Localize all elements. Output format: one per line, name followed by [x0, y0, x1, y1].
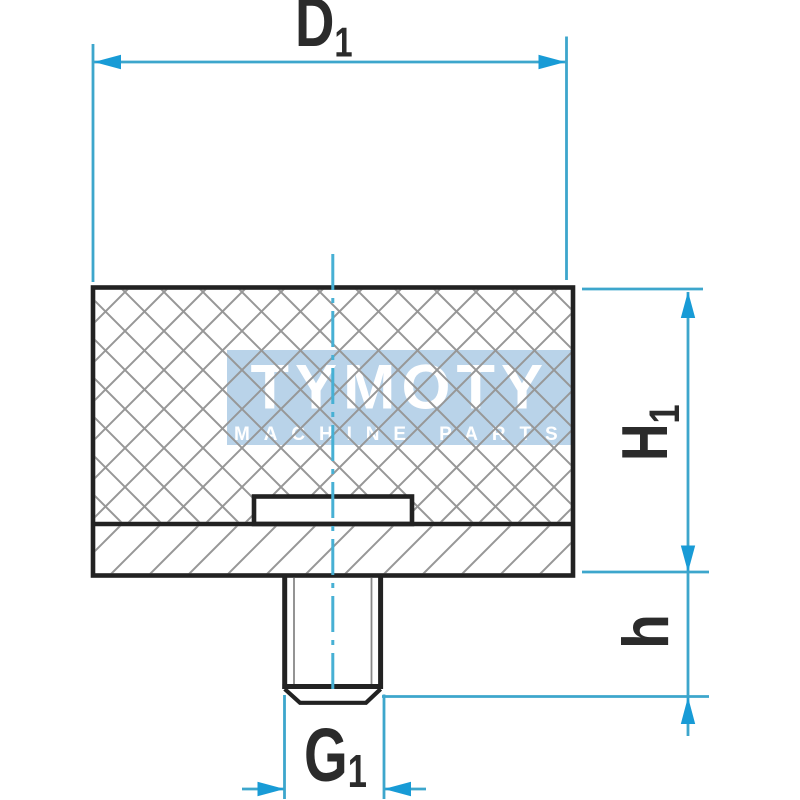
svg-text:h: h	[610, 614, 682, 649]
